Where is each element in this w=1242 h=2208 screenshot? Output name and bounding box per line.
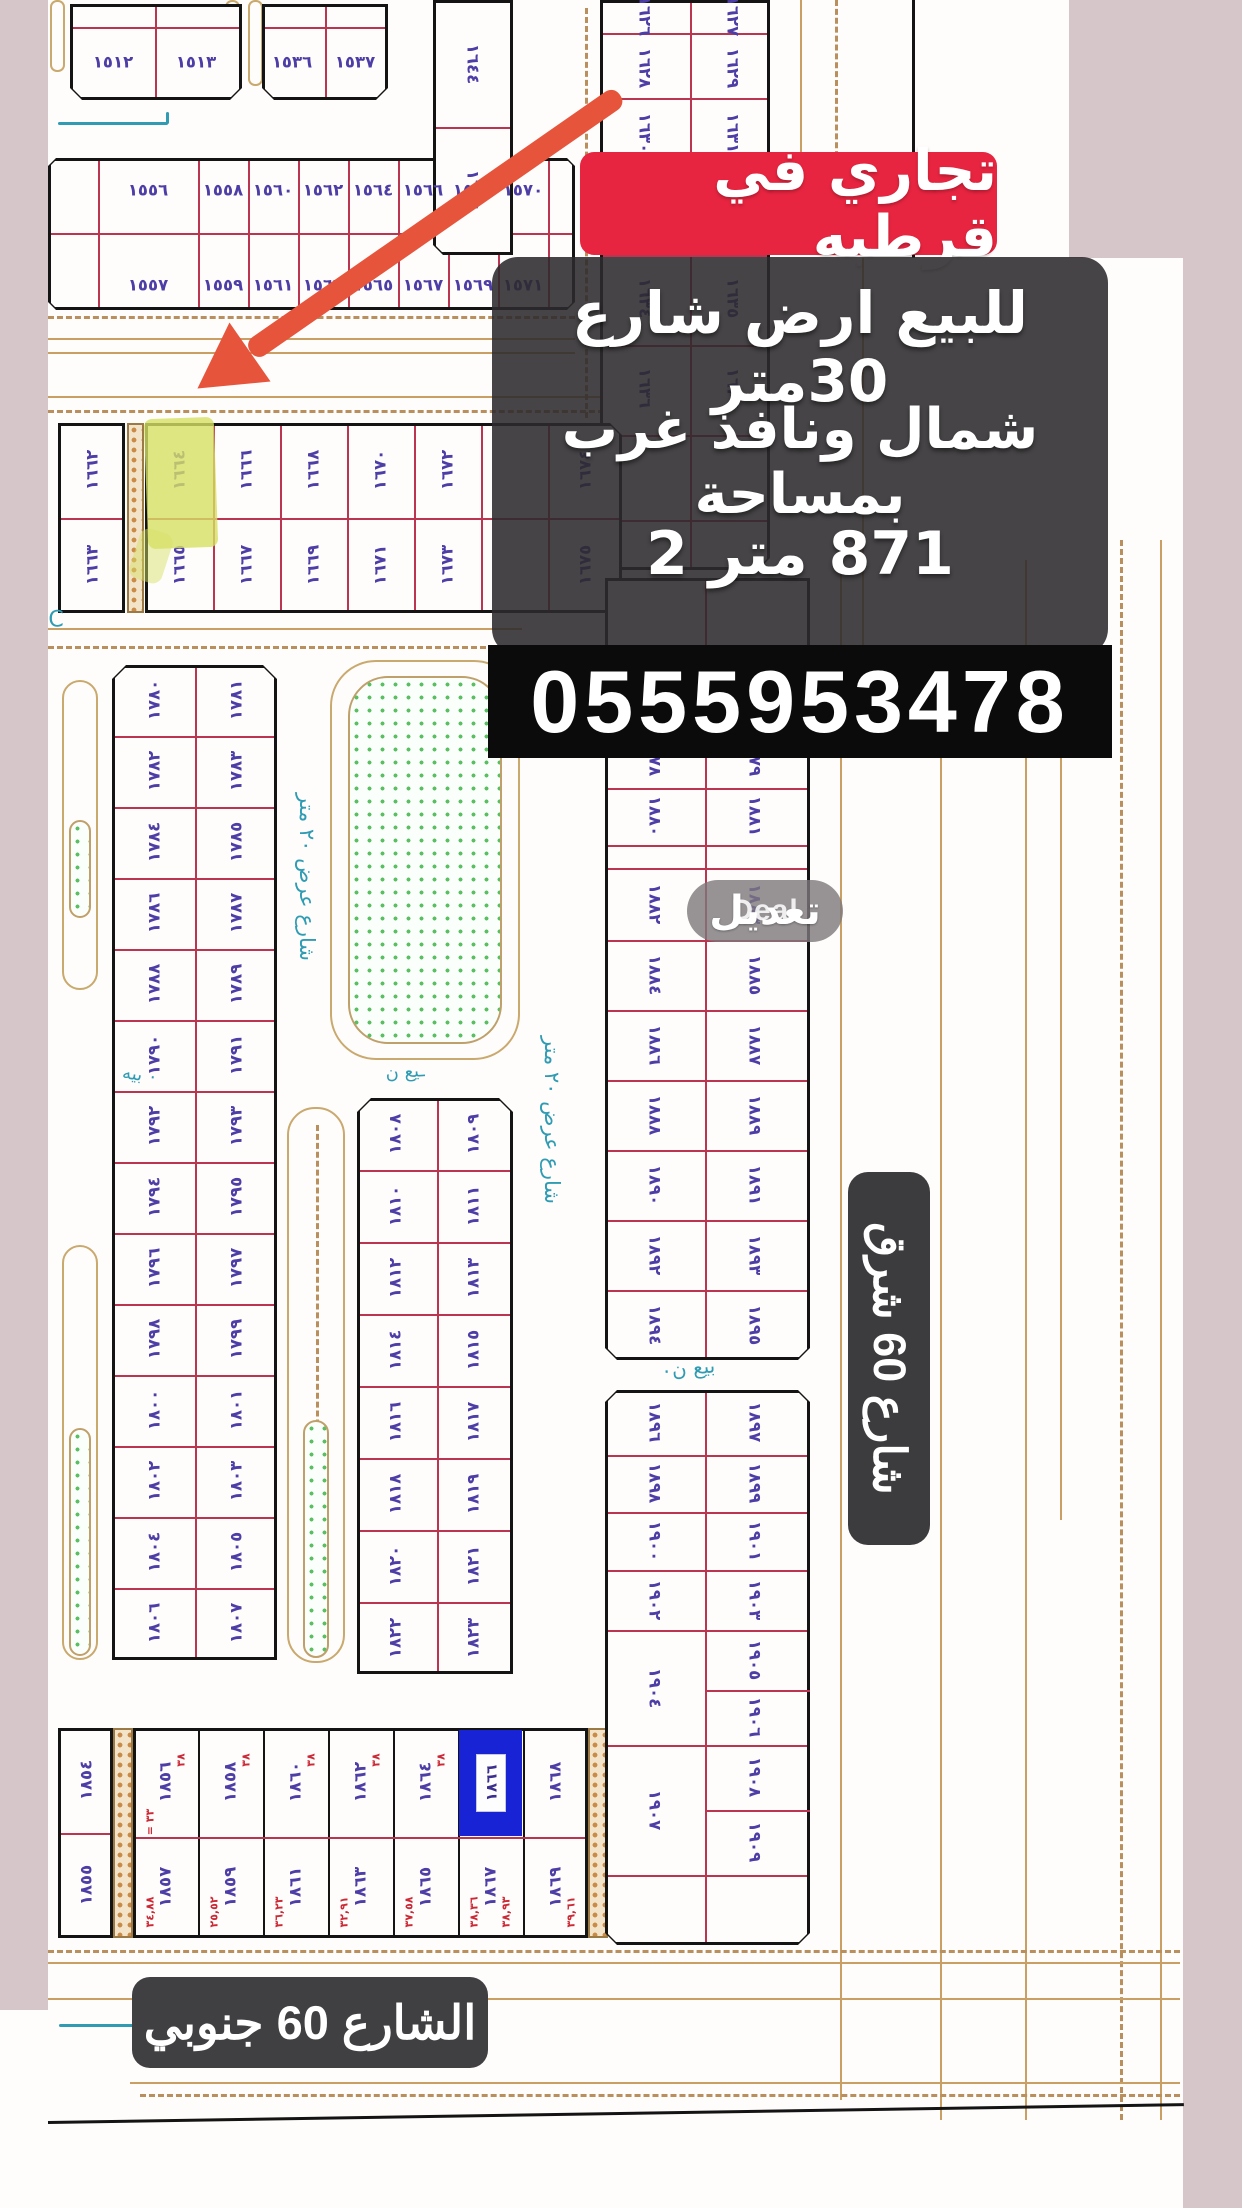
plot-number: ١٥٥٨ — [203, 181, 243, 200]
plot-number: ١٨٨٨ — [646, 1095, 665, 1135]
plot-number: ١٨٩٨ — [646, 1463, 665, 1503]
plot-number: ١٥٥٧ — [128, 276, 168, 295]
street-line — [840, 560, 842, 2100]
grid-line-h — [115, 736, 274, 738]
plot-number: ١٨٥٩ — [221, 1867, 240, 1907]
street-label-south-text: الشارع 60 جنوبي — [144, 1995, 477, 2051]
grid-line-h — [436, 127, 510, 129]
plot-number: ١٨٨٠ — [646, 796, 665, 836]
grid-line-v — [325, 7, 327, 97]
plot-number: ١٨٠١ — [227, 1390, 246, 1430]
plot-area-annotation: ٣٢,٩١ — [338, 1896, 351, 1927]
survey-line — [59, 2024, 139, 2027]
plot-number: ١٧٩٩ — [227, 1319, 246, 1359]
plot-number: ١٩٠٦ — [746, 1697, 765, 1737]
plot-number: ١٧٩٤ — [145, 1177, 164, 1217]
map-ad-screenshot: ١٨٦٦١٥١٢١٥١٣١٥٣٦١٥٣٧١٥٥٦١٥٥٨١٥٦٠١٥٦٢١٥٦٤… — [0, 0, 1242, 2208]
plot-number: ١٩٠٤ — [646, 1668, 665, 1708]
plot-number: ١٨٢٢ — [386, 1618, 405, 1658]
plot-number: ١٧٩٧ — [227, 1248, 246, 1288]
grid-line-h — [115, 1588, 274, 1590]
plot-number: ١٨٦٠ — [286, 1762, 305, 1802]
grid-line-h — [608, 1150, 807, 1152]
plot-number: ١٧٩٦ — [145, 1248, 164, 1288]
grid-line-h — [608, 845, 807, 847]
plot-number: ١٥٦٩ — [453, 276, 493, 295]
plot-area-annotation: ٣٨,٣٦ — [468, 1896, 481, 1927]
grid-line-h — [608, 1875, 807, 1877]
grid-line-h — [360, 1170, 510, 1172]
plot-number: ١٨٦٣ — [351, 1867, 370, 1907]
grid-line-v — [198, 1731, 200, 1935]
grid-line-h — [115, 1020, 274, 1022]
plot-number: ١٧٨١ — [227, 680, 246, 720]
plot-number: ١٨٩٥ — [746, 1305, 765, 1345]
plot-number: ١٧٨٢ — [145, 751, 164, 791]
survey-line-hook — [166, 112, 169, 124]
street-line — [48, 628, 522, 630]
plot-number: ١٦٦٢ — [83, 450, 102, 490]
grid-line-v — [155, 7, 157, 97]
grid-line-h — [115, 1091, 274, 1093]
plot-number: ١٥٣٧ — [335, 53, 375, 72]
plot-number: ١٨١٣ — [464, 1258, 483, 1298]
lane-outline — [248, 0, 263, 86]
grid-line-h — [608, 1512, 807, 1514]
plot-number: ١٨١١ — [464, 1186, 483, 1226]
plot-number: ١٥٦١ — [253, 276, 293, 295]
plot-number: ١٩٠٢ — [646, 1580, 665, 1620]
grid-line-h — [115, 1233, 274, 1235]
grid-line-h — [608, 1630, 807, 1632]
street-line-dashed — [48, 1950, 1180, 1953]
plot-number: ١٦٦٣ — [83, 545, 102, 585]
grid-line-h — [61, 1833, 110, 1835]
plot-number: ١٥٣٦ — [272, 53, 312, 72]
survey-line — [58, 122, 168, 125]
plot-number: ١٨٠٦ — [145, 1603, 164, 1643]
plot-number: ١٥٥٩ — [203, 276, 243, 295]
plot-number: ١٨٦٨ — [546, 1762, 565, 1802]
plot-number: ١٧٨٧ — [227, 893, 246, 933]
street-label-east-text: شارع 60 شرق — [862, 1222, 915, 1495]
plot-number: ١٨٩٩ — [746, 1463, 765, 1503]
plot-number: ١٨٦٢ — [351, 1762, 370, 1802]
plot-number: ١٨٥٦ — [156, 1762, 175, 1802]
plot-area-annotation: ٣٨ — [240, 1753, 253, 1766]
plot-area-annotation: ٣٨ — [435, 1753, 448, 1766]
plot-number: ١٨٠٢ — [145, 1461, 164, 1501]
park-green-area — [69, 820, 91, 918]
grid-line-h — [115, 1517, 274, 1519]
plot-number: ١٧٩٨ — [145, 1319, 164, 1359]
grid-line-v — [328, 1731, 330, 1935]
plot-area-annotation: ٣٧,٥٨ — [403, 1896, 416, 1927]
street-label-fragment: ـيع ن — [385, 1060, 426, 1084]
grid-line-h — [115, 878, 274, 880]
plot-number: ١٩٠٩ — [746, 1822, 765, 1862]
plot-area-annotation: ٣٨ — [305, 1753, 318, 1766]
plot-number: ١٩٠٣ — [746, 1580, 765, 1620]
title-banner: تجاري في قرطبه — [580, 152, 997, 255]
plot-number: ١٨٠٥ — [227, 1532, 246, 1572]
plot-number: ١٦٤٤ — [464, 44, 483, 84]
street-line-dashed — [1120, 540, 1123, 2120]
plot-number: ١٨١٩ — [464, 1474, 483, 1514]
grid-line-v — [705, 1393, 707, 1942]
plot-number: ١٨١٨ — [386, 1474, 405, 1514]
plot-area-annotation: ٣٨,٩٣ — [500, 1896, 513, 1927]
plot-number: ١٨٥٥ — [77, 1865, 96, 1905]
plot-number: ١٥٦٢ — [303, 181, 343, 200]
plot-number: ١٨٨١ — [746, 796, 765, 836]
plot-area-annotation: ٣٨ — [370, 1753, 383, 1766]
ad-line-1: للبيع ارض شارع 30متر — [492, 279, 1108, 415]
plot-number: ١٧٨٩ — [227, 964, 246, 1004]
plot-area-annotation: ٣٤,٨٨ — [144, 1896, 157, 1927]
plot-number: ١٨٠٠ — [145, 1390, 164, 1430]
plot-number: ١٨٥٨ — [221, 1762, 240, 1802]
street-line — [940, 690, 942, 2120]
plot-number: ١٨٦٤ — [416, 1762, 435, 1802]
street-label-east: شارع 60 شرق — [848, 1172, 930, 1545]
grid-line-h — [608, 788, 807, 790]
plot-number: ١٦٦٧ — [237, 545, 256, 585]
hatched-strip — [113, 1728, 133, 1938]
map-block — [112, 665, 277, 1660]
plot-area-annotation: ٣٨ — [175, 1753, 188, 1766]
grid-line-v — [393, 1731, 395, 1935]
plot-number: ١٨٠٧ — [227, 1603, 246, 1643]
plot-number: ١٨٠٩ — [464, 1114, 483, 1154]
plot-number: ١٥٦٠ — [253, 181, 293, 200]
plot-number: ١٨٥٤ — [77, 1760, 96, 1800]
app-margin — [1183, 0, 1242, 2208]
plot-number: ١٦٧٣ — [438, 545, 457, 585]
street-line — [1025, 560, 1027, 2120]
plot-number: ١٨٠٨ — [386, 1114, 405, 1154]
grid-line-h — [115, 1446, 274, 1448]
plot-number: ١٧٩١ — [227, 1035, 246, 1075]
plot-number: ١٧٩٥ — [227, 1177, 246, 1217]
plot-number: ١٨٢٠ — [386, 1546, 405, 1586]
plot-number: ١٥١٢ — [93, 53, 133, 72]
plot-number: ١٦٧٢ — [438, 450, 457, 490]
plot-area-annotation: ٢٥,٥٢ — [208, 1896, 221, 1927]
grid-line-h — [603, 98, 767, 100]
plot-number: ١٨٨٦ — [646, 1025, 665, 1065]
street-line — [48, 1962, 1180, 1964]
plot-number: ١٧٨٤ — [145, 822, 164, 862]
grid-line-h — [360, 1602, 510, 1604]
plot-number: ١٥٦٤ — [353, 181, 393, 200]
plot-number: ١٨٦١ — [286, 1867, 305, 1907]
plot-number: ١٧٩٣ — [227, 1106, 246, 1146]
plot-number: ١٦٢٨ — [636, 48, 655, 88]
plot-number: ١٩٠٥ — [746, 1640, 765, 1680]
grid-line-h — [608, 1290, 807, 1292]
plot-number: ١٥٦٧ — [403, 276, 443, 295]
plot-sold-label-box: ١٨٦٦ — [476, 1754, 506, 1812]
grid-line-h — [608, 1010, 807, 1012]
plot-number: ١٨٢٣ — [464, 1618, 483, 1658]
plot-number: ١٥٦٦ — [403, 181, 443, 200]
plot-number: ١٨٨٩ — [746, 1095, 765, 1135]
plot-number: ١٩٠٧ — [646, 1790, 665, 1830]
grid-line-h — [61, 518, 122, 520]
grid-line-v — [523, 1731, 525, 1935]
plot-number: ١٨٢١ — [464, 1546, 483, 1586]
grid-line-h — [608, 1455, 807, 1457]
park-green-area — [69, 1428, 91, 1656]
grid-line-h — [608, 1745, 807, 1747]
street-label-south: الشارع 60 جنوبي — [132, 1977, 488, 2068]
plot-number: ١٨٦٧ — [481, 1867, 500, 1907]
phone-number: 0555953478 — [530, 651, 1069, 753]
title-banner-text: تجاري في قرطبه — [580, 138, 997, 270]
grid-line-h — [360, 1242, 510, 1244]
grid-line-h — [115, 949, 274, 951]
plot-number: ١٨٦٩ — [546, 1867, 565, 1907]
plot-number: ١٨٩٠ — [646, 1165, 665, 1205]
map-block — [605, 1390, 810, 1945]
plot-number: ١٥٥٦ — [128, 181, 168, 200]
ad-line-2: شمال ونافذ غرب بمساحة — [492, 397, 1108, 527]
plot-number: ١٦٢٦ — [636, 0, 655, 36]
grid-line-h — [360, 1314, 510, 1316]
tadeel-watermark: Deal تعديل — [687, 880, 843, 942]
street-line — [130, 2082, 1180, 2084]
plot-number: ١٩٠٨ — [746, 1757, 765, 1797]
plot-number: ١٨٨٤ — [646, 955, 665, 995]
plot-number: ١٨٠٤ — [145, 1532, 164, 1572]
plot-number: ١٨٠٣ — [227, 1461, 246, 1501]
plot-number: ١٨١٠ — [386, 1186, 405, 1226]
plot-number: ١٧٨٥ — [227, 822, 246, 862]
street-label-fragment: بيع ن٠ — [660, 1353, 716, 1383]
plot-number: ١٨٩٤ — [646, 1305, 665, 1345]
app-margin — [1069, 0, 1183, 258]
grid-line-seg — [705, 1810, 810, 1812]
grid-line-h — [608, 868, 807, 870]
plot-number: ١٨٨٥ — [746, 955, 765, 995]
plot-number: ١٨١٥ — [464, 1330, 483, 1370]
plot-number: ١٩٠٠ — [646, 1521, 665, 1561]
street-line-dashed — [140, 2094, 1180, 2097]
grid-line-h — [136, 1837, 585, 1839]
plot-number: ١٨٩١ — [746, 1165, 765, 1205]
plot-number: ١٧٨٣ — [227, 751, 246, 791]
grid-line-seg — [705, 1690, 810, 1692]
plot-number: ١٦٢٩ — [724, 48, 743, 88]
app-margin — [0, 0, 48, 2010]
park-green-area — [348, 676, 502, 1044]
watermark-latin: Deal — [731, 894, 798, 928]
grid-line-h — [115, 807, 274, 809]
plot-number: ١٨٨٧ — [746, 1025, 765, 1065]
plot-number: ١٨١٧ — [464, 1402, 483, 1442]
street-label-width20: شارع عرض ٢٠ متر — [540, 1036, 564, 1204]
plot-number: ١٨١٢ — [386, 1258, 405, 1298]
plot-number: ١٧٨٦ — [145, 893, 164, 933]
grid-line-v — [263, 1731, 265, 1935]
plot-number: ١٧٩٢ — [145, 1106, 164, 1146]
plot-number: ١٦٦٥ — [170, 545, 189, 585]
hatched-strip — [127, 423, 144, 613]
street-line — [1160, 540, 1162, 2120]
phone-number-strip: 0555953478 — [488, 645, 1112, 758]
plot-number: ١٦٢٧ — [724, 0, 743, 36]
grid-line-h — [608, 1080, 807, 1082]
plot-area-annotation: ٣٣ = — [144, 1809, 157, 1835]
grid-line-h — [608, 1570, 807, 1572]
grid-line-h — [115, 1304, 274, 1306]
lane-outline — [50, 0, 65, 72]
plot-number: ١٨٦٦ — [482, 1765, 500, 1802]
grid-line-h — [608, 1220, 807, 1222]
grid-line-h — [360, 1458, 510, 1460]
plot-number: ١٨٩٢ — [646, 1235, 665, 1275]
plot-number: ١٩٠١ — [746, 1521, 765, 1561]
plot-number: ١٦٦٨ — [304, 450, 323, 490]
plot-number: ١٦٦٦ — [237, 450, 256, 490]
street-label-width20: شارع عرض ٢٠ متر — [295, 793, 319, 961]
park-green-area — [303, 1420, 329, 1658]
grid-line-h — [115, 1162, 274, 1164]
plot-number: ١٨٨٢ — [646, 884, 665, 924]
plot-number: ١٨٩٦ — [646, 1402, 665, 1442]
plot-number: ١٨١٦ — [386, 1402, 405, 1442]
ad-line-3: 871 متر 2 — [492, 519, 1108, 589]
street-line-dashed — [48, 646, 522, 649]
plot-number: ١٧٨٨ — [145, 964, 164, 1004]
plot-number: ١٨٩٣ — [746, 1235, 765, 1275]
plot-number: ١٨٥٧ — [156, 1867, 175, 1907]
map-block — [357, 1098, 513, 1674]
grid-line-h — [360, 1530, 510, 1532]
grid-line-h — [360, 1386, 510, 1388]
grid-line-h — [115, 1375, 274, 1377]
street-line — [1060, 690, 1062, 1520]
plot-number: ١٥١٣ — [176, 53, 216, 72]
grid-line-h — [73, 27, 239, 29]
grid-line-h — [265, 27, 385, 29]
plot-number: ١٨٦٥ — [416, 1867, 435, 1907]
street-label-fragment: C — [48, 608, 63, 633]
ad-info-box: للبيع ارض شارع 30متر شمال ونافذ غرب بمسا… — [492, 257, 1108, 655]
plot-area-annotation: ٣٦,٢٣ — [273, 1896, 286, 1927]
plot-number: ١٧٨٠ — [145, 680, 164, 720]
plot-number: ١٦٧٠ — [371, 450, 390, 490]
plot-number: ١٦٧١ — [371, 545, 390, 585]
plot-number: ١٨٩٧ — [746, 1402, 765, 1442]
map-block-inner — [608, 1393, 807, 1942]
plot-area-annotation: ٣٩,٦١ — [565, 1896, 578, 1927]
plot-number: ١٨١٤ — [386, 1330, 405, 1370]
plot-number: ١٦٦٩ — [304, 545, 323, 585]
